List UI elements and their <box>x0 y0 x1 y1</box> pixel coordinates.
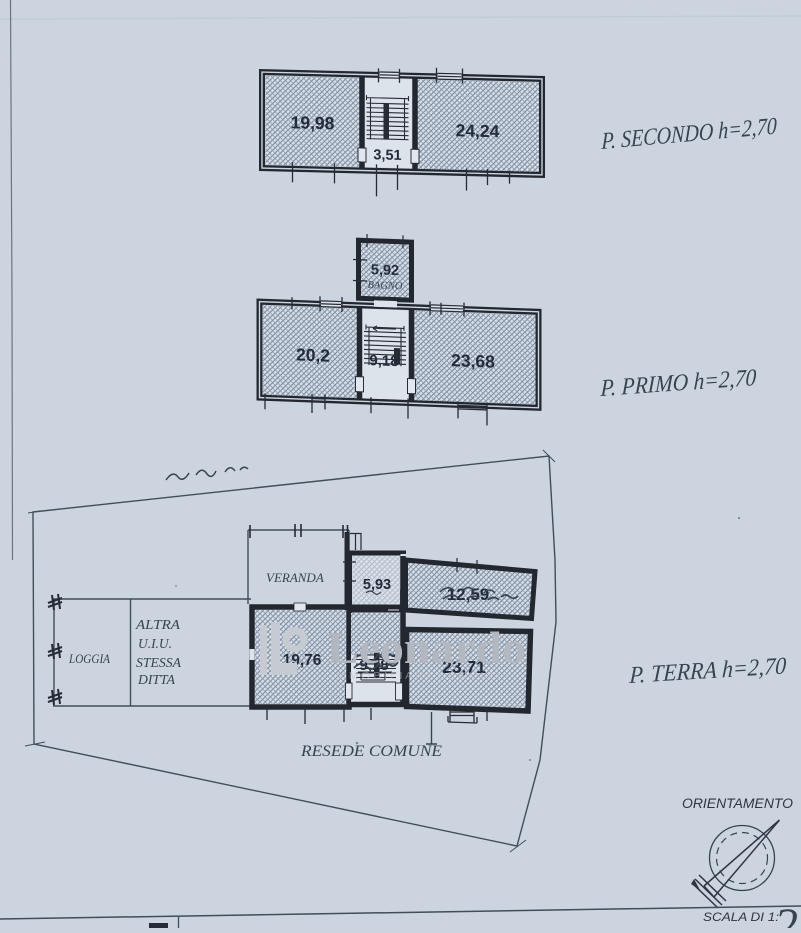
svg-text:I M M O B I L I A R E S E R V: I M M O B I L I A R E S E R V I Z I <box>330 671 500 682</box>
svg-text:U.I.U.: U.I.U. <box>138 636 172 651</box>
svg-text:5,93: 5,93 <box>363 577 391 593</box>
svg-text:3,51: 3,51 <box>373 147 401 164</box>
svg-text:BAGNO: BAGNO <box>368 280 403 292</box>
svg-text:STESSA: STESSA <box>136 655 182 670</box>
svg-text:ORIENTAMENTO: ORIENTAMENTO <box>682 796 794 811</box>
svg-text:9,18: 9,18 <box>369 352 398 370</box>
svg-text:5,92: 5,92 <box>371 262 399 279</box>
svg-text:2: 2 <box>774 899 798 928</box>
svg-text:19,98: 19,98 <box>291 112 335 133</box>
svg-text:24,24: 24,24 <box>456 120 500 141</box>
svg-text:ALTRA: ALTRA <box>135 617 181 632</box>
svg-text:Leonardo: Leonardo <box>327 622 526 673</box>
svg-text:VERANDA: VERANDA <box>266 570 324 585</box>
svg-text:23,68: 23,68 <box>451 350 495 372</box>
svg-text:LOGGIA: LOGGIA <box>68 651 110 666</box>
svg-text:SCALA DI 1:: SCALA DI 1: <box>703 910 779 924</box>
svg-text:DITTA: DITTA <box>137 672 176 687</box>
svg-text:20,2: 20,2 <box>296 344 330 365</box>
svg-text:RESEDE COMUNE: RESEDE COMUNE <box>300 743 443 760</box>
